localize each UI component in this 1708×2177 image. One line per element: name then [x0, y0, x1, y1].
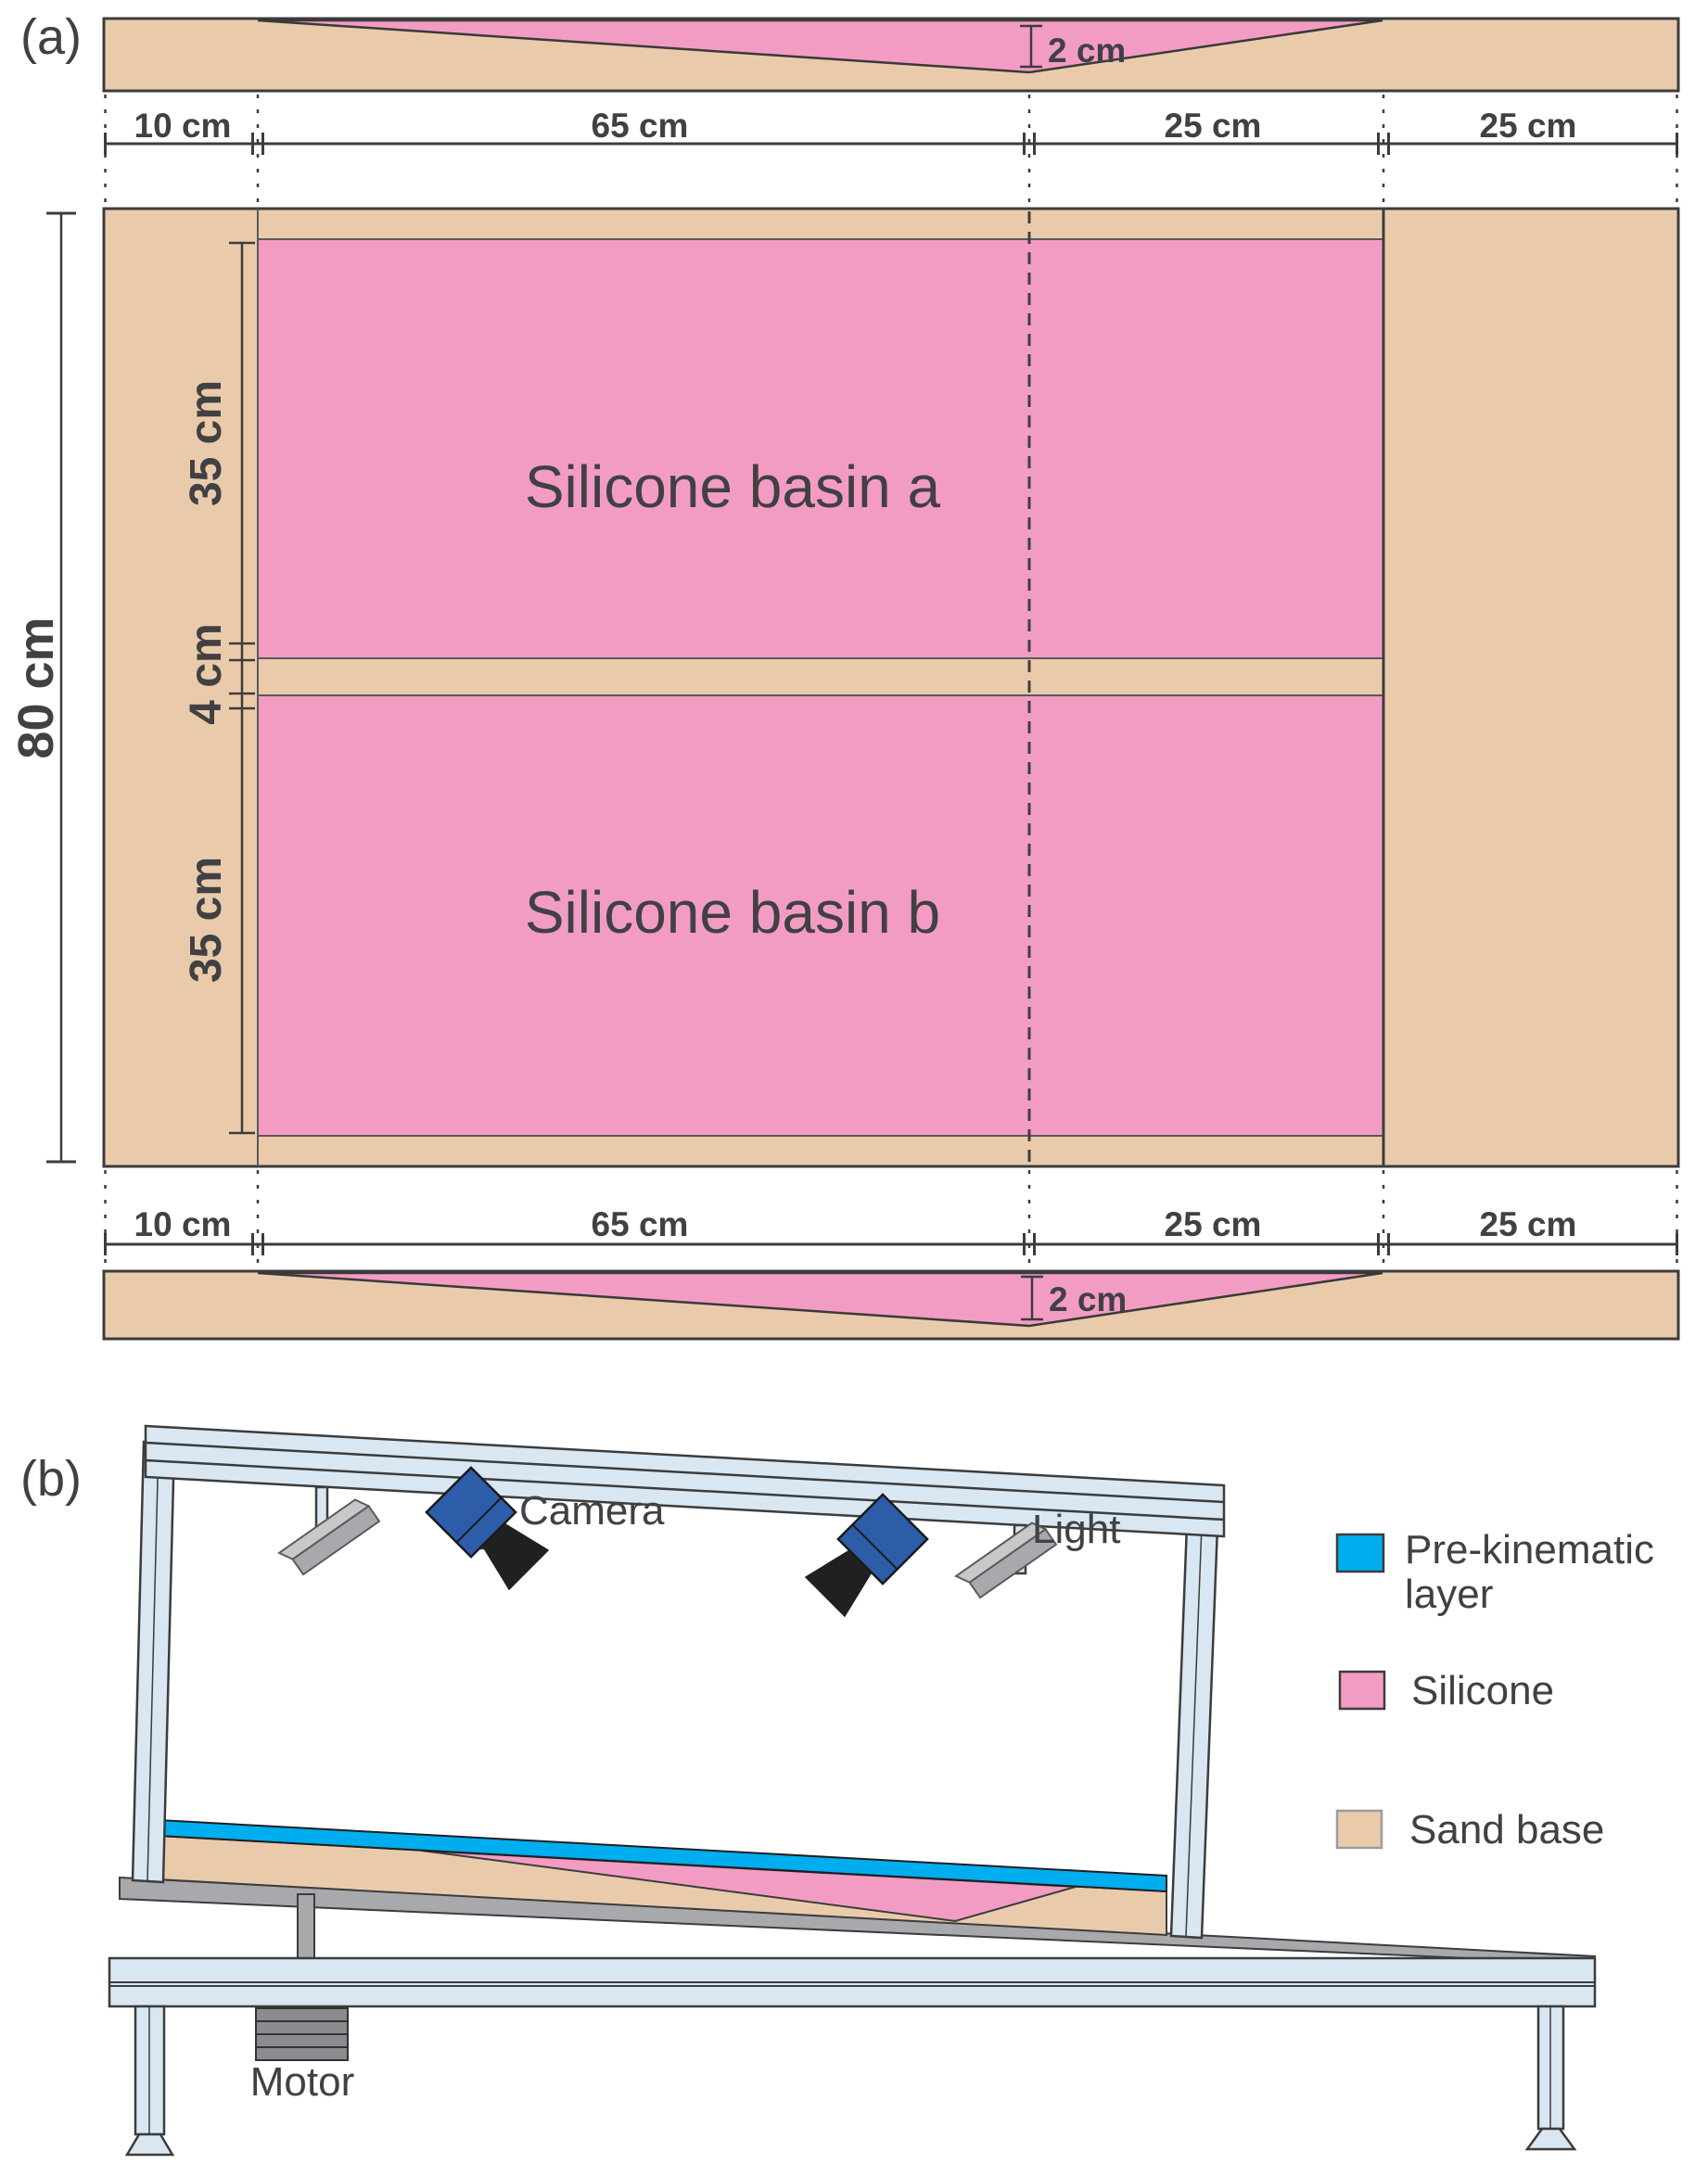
left-foot — [127, 2134, 172, 2155]
light-fixture-left — [279, 1496, 379, 1579]
panel-a-tag: (a) — [20, 9, 82, 65]
legend-label: Pre-kinematic — [1405, 1527, 1654, 1572]
motor: Motor — [250, 2008, 354, 2105]
silicone-swatch — [1340, 1672, 1384, 1709]
width-label-10cm-top: 10 cm — [134, 107, 232, 145]
legend-item-sand-base: Sand base — [1337, 1807, 1604, 1852]
sand-base-swatch — [1337, 1811, 1382, 1848]
width-label-25cm-a-bottom: 25 cm — [1165, 1205, 1262, 1243]
panel-b: (b) Motor — [0, 1352, 1708, 2177]
width-label-10cm-bottom: 10 cm — [134, 1205, 232, 1243]
panel-b-tag: (b) — [20, 1451, 82, 1507]
legend-label: Silicone — [1411, 1668, 1554, 1713]
plan-view: Silicone basin a Silicone basin b — [104, 209, 1678, 1166]
width-label-25cm-a-top: 25 cm — [1165, 107, 1262, 145]
silicone-basin-a — [258, 239, 1383, 658]
legend-label: layer — [1405, 1572, 1493, 1617]
height-label: 80 cm — [8, 617, 64, 758]
height-dimension: 80 cm — [8, 213, 76, 1162]
camera-label: Camera — [519, 1488, 665, 1534]
motor-label: Motor — [250, 2059, 354, 2105]
projection-lines-bottom — [106, 1170, 1677, 1267]
figure: (a) 2 cm 10 cm 65 cm — [0, 0, 1708, 2177]
pre-kinematic-swatch — [1337, 1534, 1383, 1572]
right-foot — [1527, 2129, 1574, 2149]
basin-b-label: Silicone basin b — [525, 879, 940, 946]
width-label-65cm-bottom: 65 cm — [592, 1205, 689, 1243]
width-dimension-top: 10 cm 65 cm 25 cm 25 cm — [105, 107, 1677, 155]
basin-a-label: Silicone basin a — [525, 453, 941, 520]
width-label-25cm-b-bottom: 25 cm — [1480, 1205, 1577, 1243]
legend: Pre-kinematic layer Silicone Sand base — [1337, 1527, 1654, 1852]
table — [109, 1958, 1595, 2006]
depth-label-bottom: 2 cm — [1049, 1280, 1127, 1318]
width-label-65cm-top: 65 cm — [592, 107, 689, 145]
motor-drive-post — [298, 1894, 314, 1959]
inner-label-35cm-b: 35 cm — [182, 857, 231, 983]
depth-label-top: 2 cm — [1048, 32, 1126, 70]
projection-lines-top — [106, 95, 1677, 204]
width-dimension-bottom: 10 cm 65 cm 25 cm 25 cm — [105, 1205, 1677, 1255]
light-label: Light — [1032, 1507, 1120, 1552]
inner-label-4cm: 4 cm — [182, 623, 231, 724]
cross-section-bottom: 2 cm — [104, 1271, 1678, 1339]
cross-section-top: 2 cm — [104, 19, 1678, 91]
legend-label: Sand base — [1409, 1807, 1604, 1852]
inner-label-35cm-a: 35 cm — [182, 380, 231, 506]
legend-item-pre-kinematic: Pre-kinematic layer — [1337, 1527, 1654, 1617]
legend-item-silicone: Silicone — [1340, 1668, 1554, 1713]
panel-a: (a) 2 cm 10 cm 65 cm — [0, 0, 1708, 1354]
width-label-25cm-b-top: 25 cm — [1480, 107, 1577, 145]
